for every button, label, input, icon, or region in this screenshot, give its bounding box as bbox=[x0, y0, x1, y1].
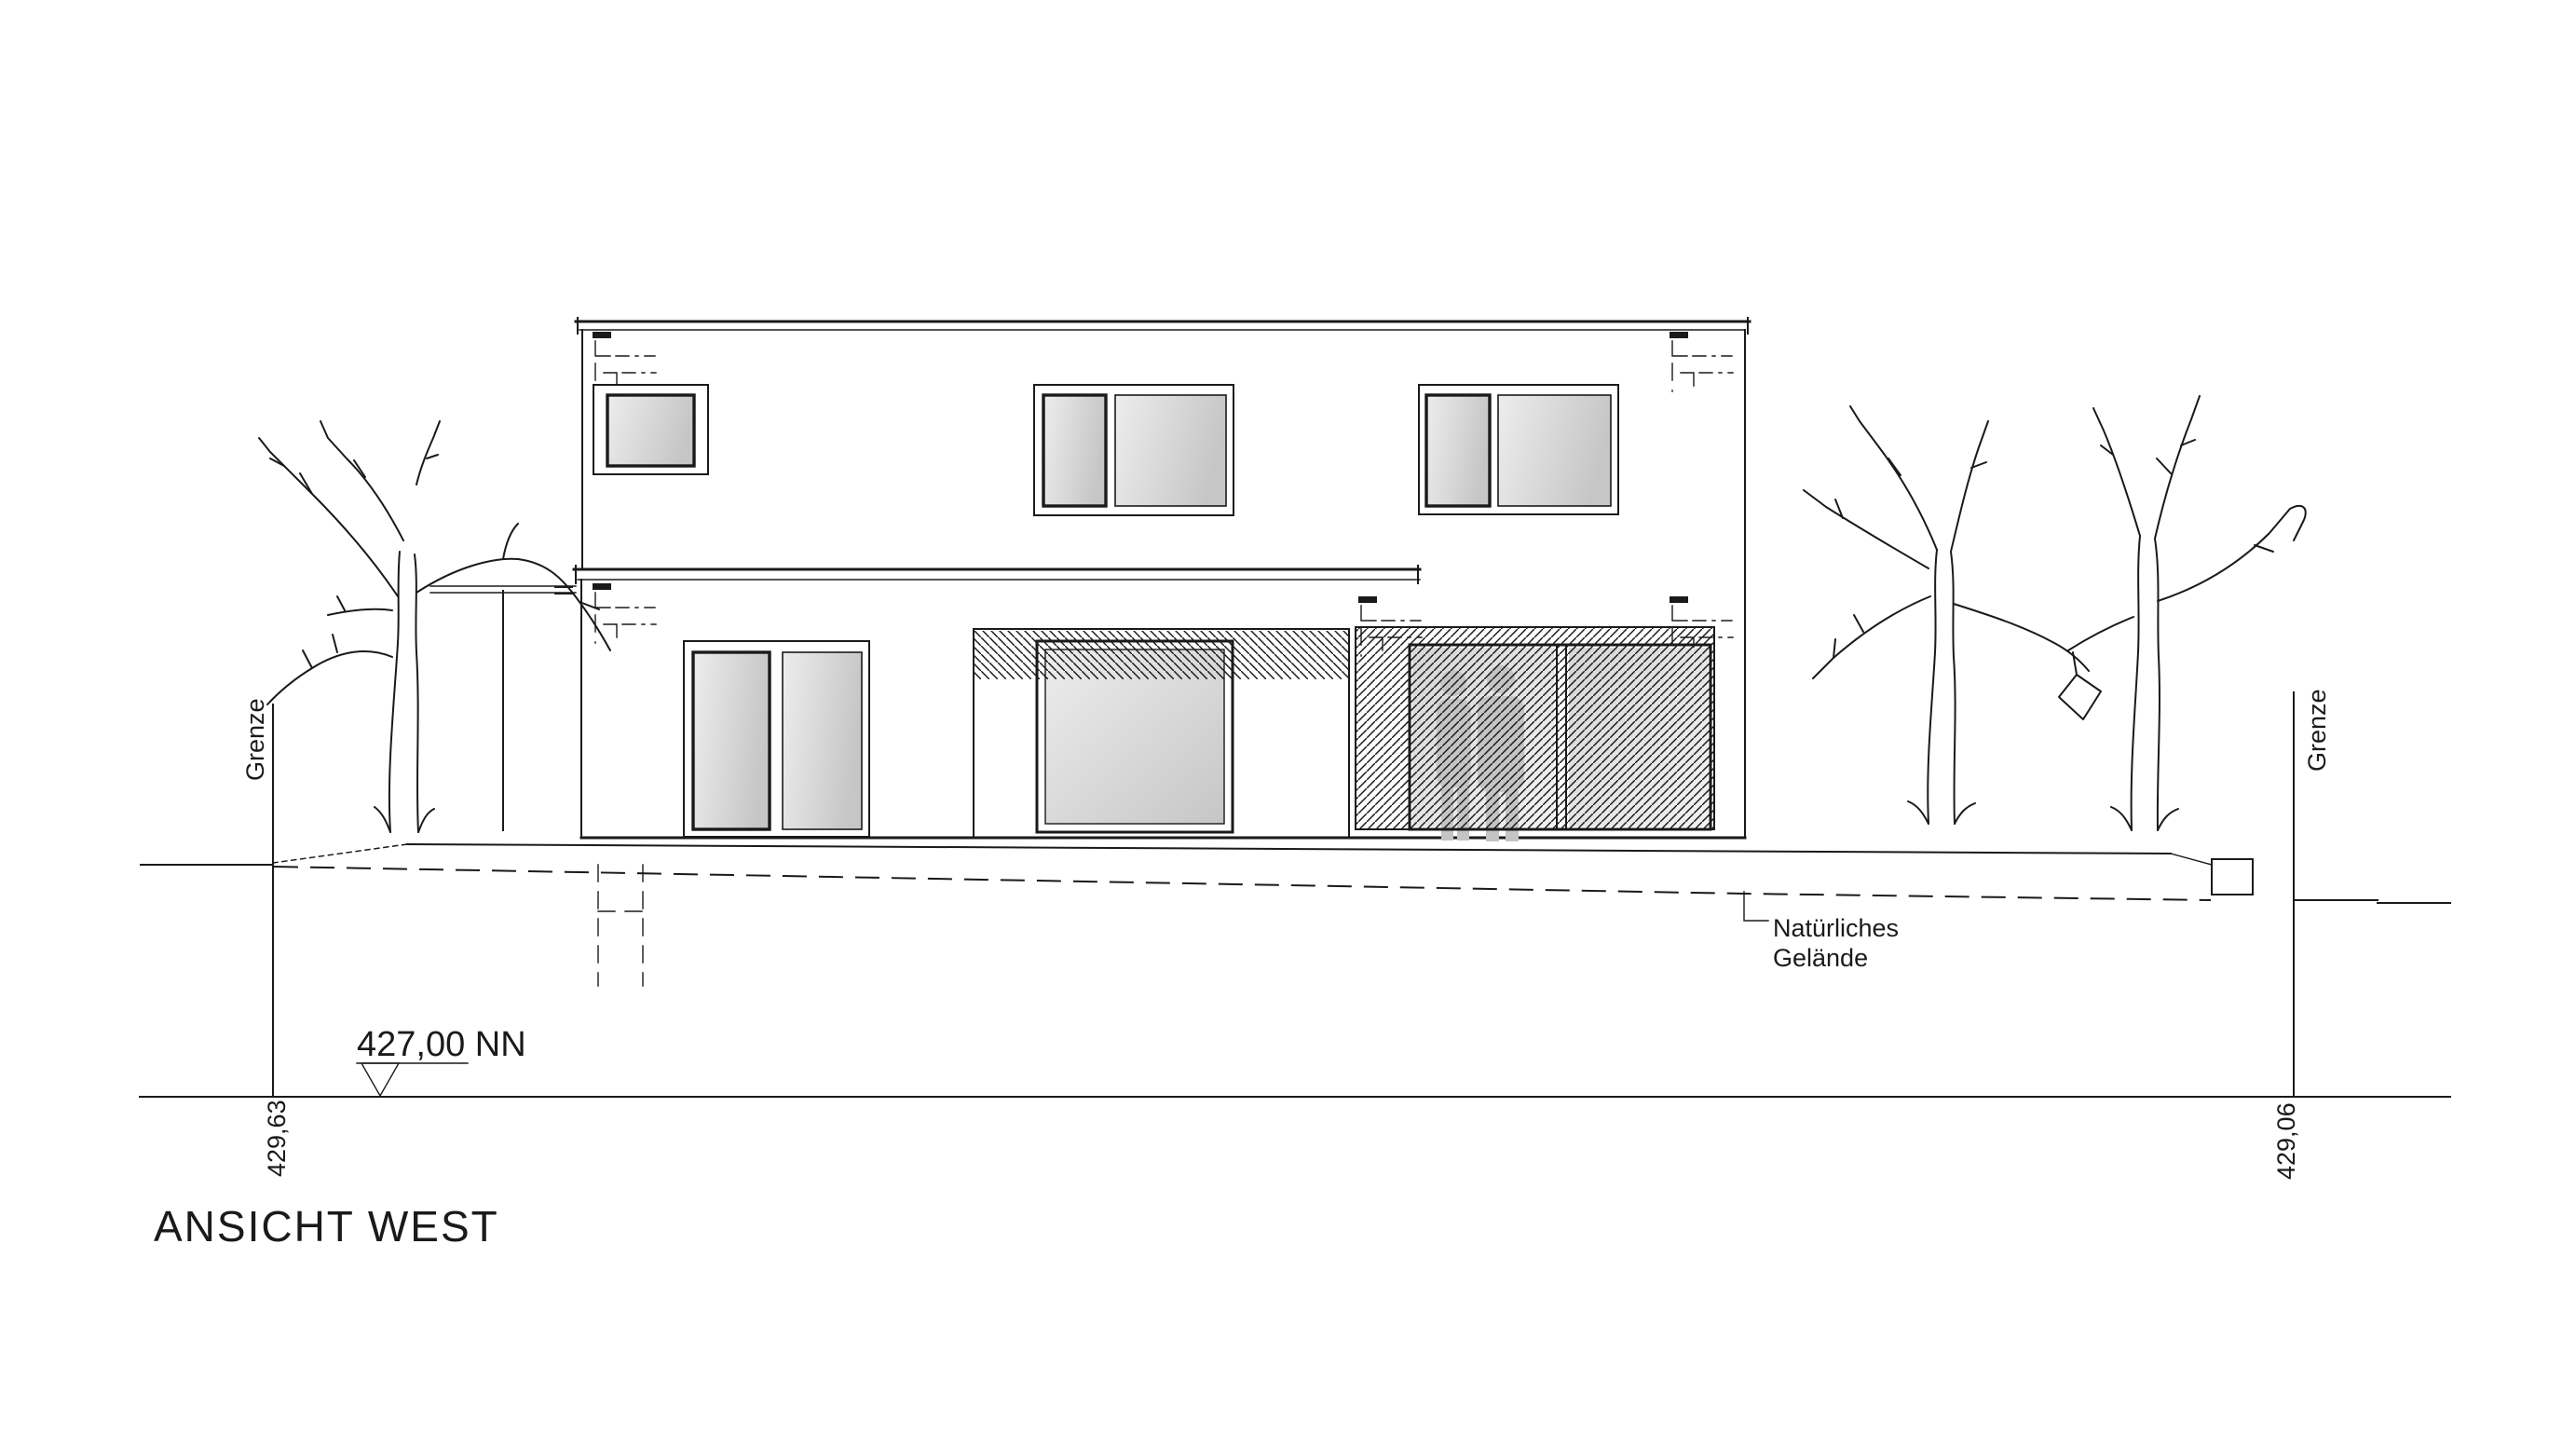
datum-triangle-icon bbox=[361, 1063, 399, 1096]
terrace-step-right bbox=[2171, 854, 2212, 865]
drawing-title: ANSICHT WEST bbox=[154, 1202, 499, 1251]
terrain-lines bbox=[141, 844, 2450, 921]
corner-detail-upper-left bbox=[593, 332, 656, 391]
terrain-label-line2: Gelände bbox=[1773, 944, 1868, 972]
foundation-hidden-lines bbox=[598, 865, 643, 986]
porch-wall bbox=[430, 586, 576, 830]
boundary-label-left: Grenze bbox=[241, 698, 269, 781]
window-upper-small bbox=[593, 385, 708, 474]
window-upper-right bbox=[1419, 385, 1618, 514]
tree-left bbox=[259, 421, 610, 832]
window-upper-middle bbox=[1034, 385, 1233, 515]
elevation-left: 429,63 bbox=[263, 1100, 291, 1177]
datum-label: 427,00 NN bbox=[357, 1025, 526, 1064]
corner-detail-upper-right bbox=[1670, 332, 1733, 391]
natural-terrain-dashed-line bbox=[275, 867, 2210, 900]
terrain-label: Natürliches Gelände bbox=[1773, 914, 1899, 972]
corner-detail-lower-left bbox=[593, 583, 656, 643]
canopy-slab bbox=[574, 566, 1420, 583]
boundary-label-right: Grenze bbox=[2303, 689, 2331, 772]
tree-right-2 bbox=[2068, 396, 2306, 830]
roof-slab bbox=[576, 318, 1750, 334]
dimension-system: Grenze Grenze 429,63 429,06 bbox=[140, 689, 2450, 1180]
window-lower-left bbox=[684, 641, 869, 837]
window-lower-middle bbox=[974, 629, 1349, 838]
terrace-wall-top bbox=[407, 844, 2171, 854]
shutter-hatch-band bbox=[975, 631, 1348, 679]
datum-marker: 427,00 NN bbox=[357, 1025, 526, 1096]
terrain-box bbox=[2212, 859, 2253, 895]
terrain-label-line1: Natürliches bbox=[1773, 914, 1899, 942]
ground-line-outside-right bbox=[2294, 900, 2450, 903]
elevation-drawing-west: Grenze Grenze 429,63 429,06 427,00 NN Na… bbox=[0, 0, 2576, 1449]
ground-slope-left bbox=[273, 844, 407, 863]
tree-right-1 bbox=[1804, 406, 2101, 824]
glass-section-lower-right bbox=[1356, 627, 1714, 841]
house bbox=[555, 318, 1750, 841]
terrain-label-leader bbox=[1744, 892, 1768, 921]
elevation-right: 429,06 bbox=[2272, 1102, 2300, 1180]
